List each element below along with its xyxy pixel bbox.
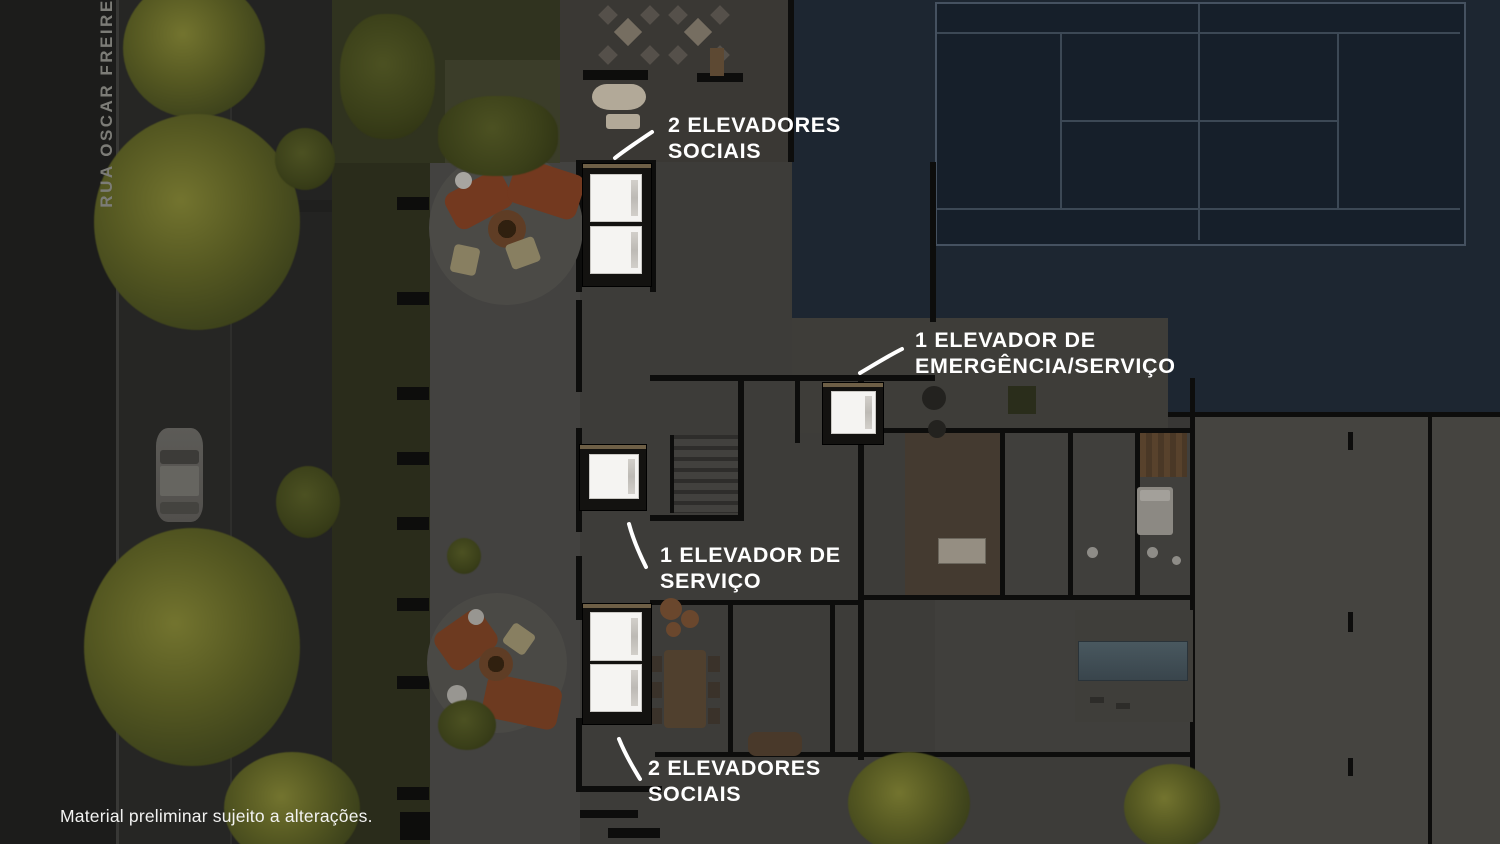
annotation-line: 2 ELEVADORES bbox=[668, 112, 841, 138]
annotation-emergency: 1 ELEVADOR DE EMERGÊNCIA/SERVIÇO bbox=[915, 327, 1176, 379]
leader-line-service bbox=[629, 524, 646, 567]
annotation-line: SERVIÇO bbox=[660, 568, 841, 594]
annotation-line: SOCIAIS bbox=[668, 138, 841, 164]
annotation-line: SOCIAIS bbox=[648, 781, 821, 807]
floor-plan: RUA OSCAR FREIRE 2 ELEVADORES SOCIAIS 1 … bbox=[0, 0, 1500, 844]
annotation-social-bottom: 2 ELEVADORES SOCIAIS bbox=[648, 755, 821, 807]
annotation-social-top: 2 ELEVADORES SOCIAIS bbox=[668, 112, 841, 164]
leader-line-social-top bbox=[615, 132, 652, 158]
annotation-service: 1 ELEVADOR DE SERVIÇO bbox=[660, 542, 841, 594]
disclaimer-text: Material preliminar sujeito a alterações… bbox=[60, 806, 373, 827]
leader-line-emergency bbox=[860, 349, 902, 373]
annotation-line: 2 ELEVADORES bbox=[648, 755, 821, 781]
annotation-line: 1 ELEVADOR DE bbox=[915, 327, 1176, 353]
leader-line-social-bottom bbox=[619, 739, 640, 779]
annotation-line: 1 ELEVADOR DE bbox=[660, 542, 841, 568]
annotation-line: EMERGÊNCIA/SERVIÇO bbox=[915, 353, 1176, 379]
